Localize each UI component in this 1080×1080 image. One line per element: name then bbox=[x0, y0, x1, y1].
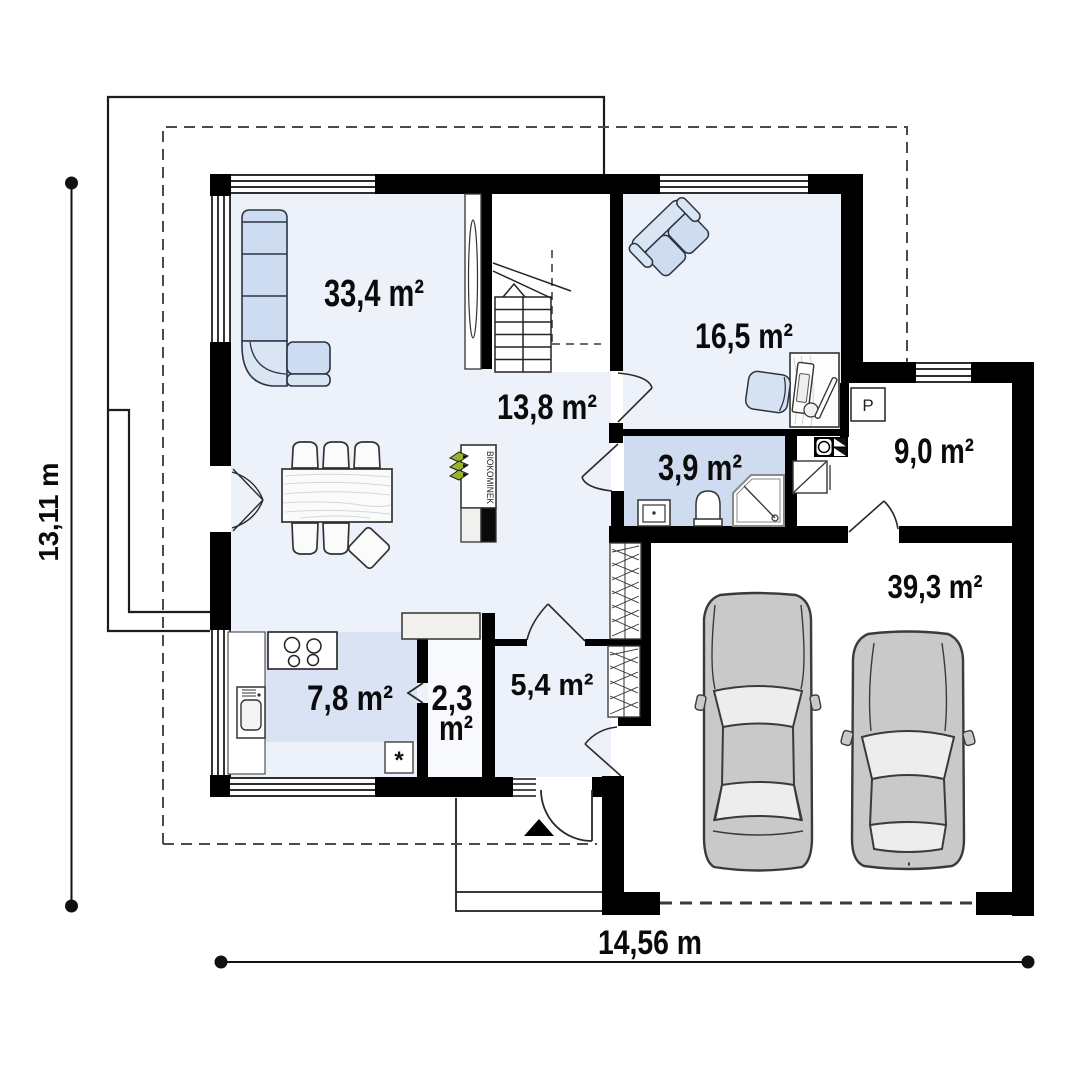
svg-text:16,5 m²: 16,5 m² bbox=[695, 317, 793, 356]
svg-text:5,4 m²: 5,4 m² bbox=[511, 667, 594, 702]
svg-text:P: P bbox=[862, 396, 873, 415]
svg-text:BIOKOMINEK: BIOKOMINEK bbox=[485, 451, 495, 504]
svg-text:m²: m² bbox=[439, 709, 473, 748]
svg-text:*: * bbox=[394, 747, 404, 774]
svg-text:13,8 m²: 13,8 m² bbox=[497, 388, 597, 427]
svg-text:9,0 m²: 9,0 m² bbox=[894, 432, 974, 471]
svg-text:7,8 m²: 7,8 m² bbox=[307, 679, 393, 718]
svg-text:14,56 m: 14,56 m bbox=[598, 924, 702, 962]
svg-text:33,4 m²: 33,4 m² bbox=[324, 273, 424, 315]
svg-text:39,3 m²: 39,3 m² bbox=[888, 568, 983, 605]
svg-text:13,11 m: 13,11 m bbox=[33, 463, 64, 562]
svg-text:3,9 m²: 3,9 m² bbox=[658, 447, 742, 488]
